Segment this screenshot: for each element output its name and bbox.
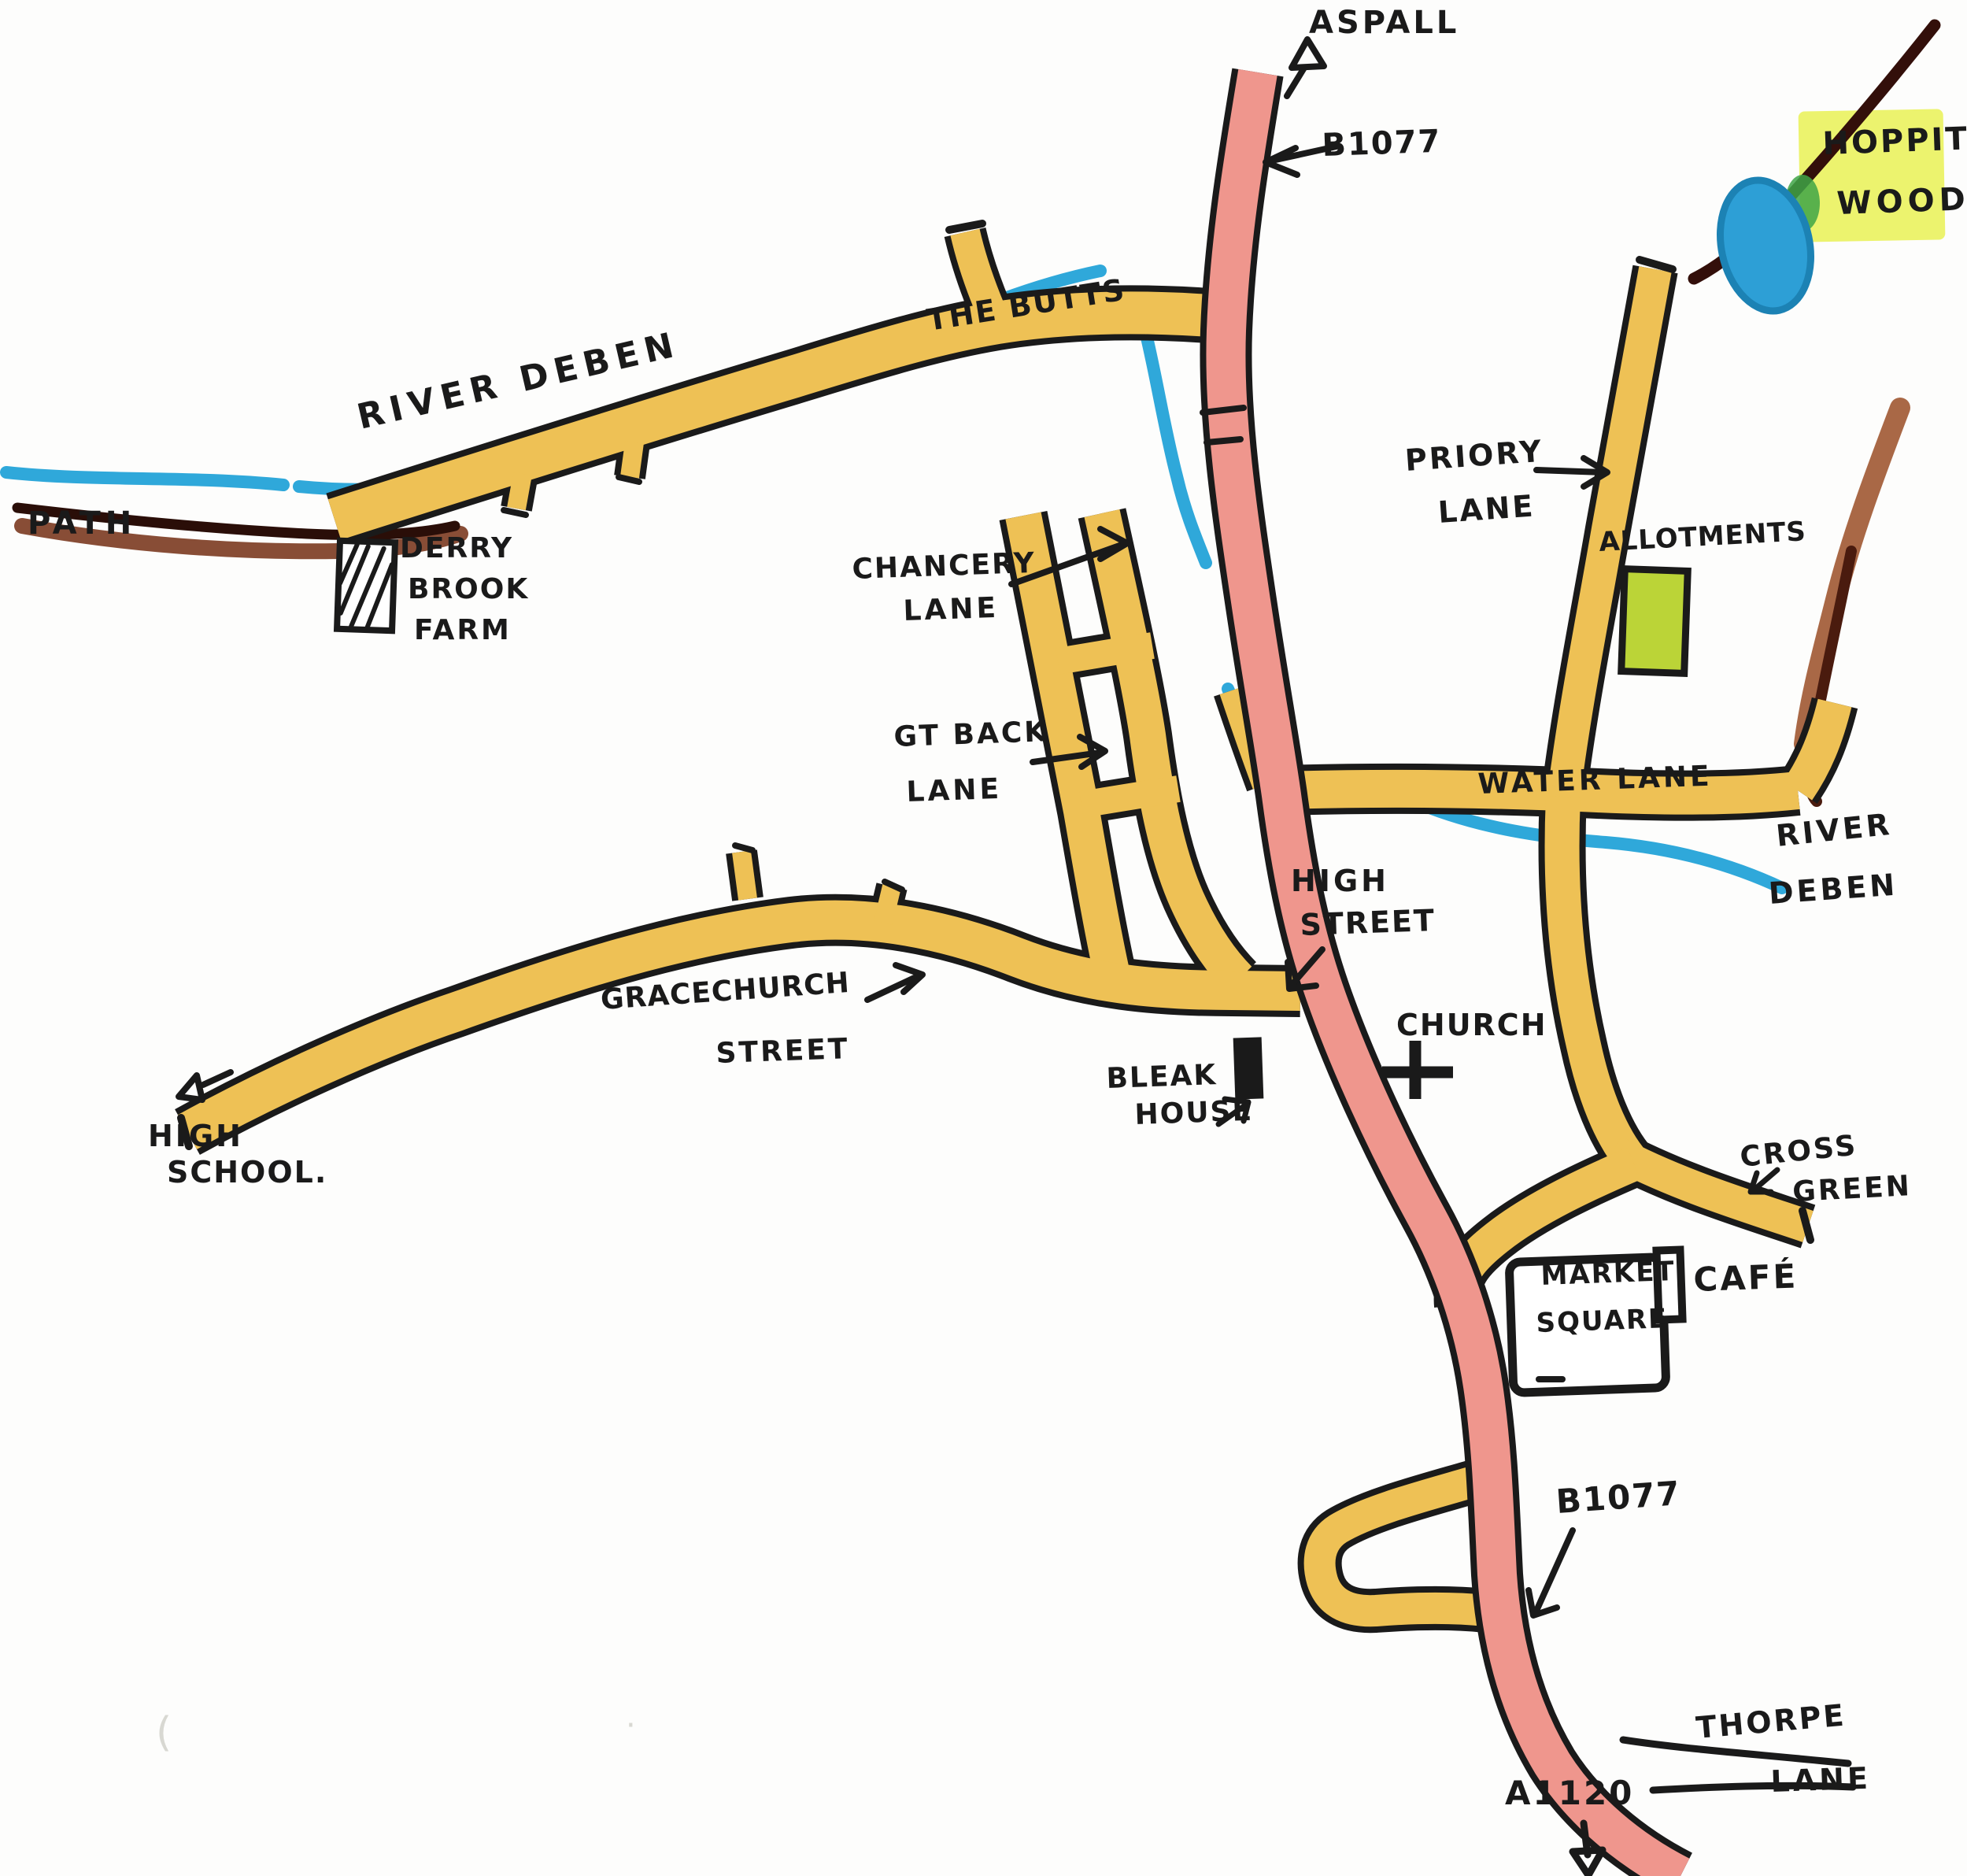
road-grace-stub-1 [741, 852, 748, 899]
tick-b1077-side-2 [1207, 439, 1240, 442]
label-brook: BROOK [408, 573, 529, 605]
road-butts-stub-1 [516, 474, 523, 509]
label-path: PATH [28, 505, 136, 542]
label-bleak: BLEAK [1106, 1059, 1218, 1095]
hand-drawn-town-map: ASPALLB1077HOPPITWOOD.THE BUTTSRIVER DEB… [0, 0, 1967, 1876]
road-ladder-rung-1 [1058, 646, 1152, 661]
label-gt-back: GT BACK [893, 716, 1049, 753]
allotments-rect [1621, 569, 1688, 674]
label-priory-lane: LANE [1437, 488, 1536, 530]
label-aspall: ASPALL [1309, 5, 1459, 41]
label-farm: FARM [414, 614, 512, 646]
label-a1120: A1120 [1505, 1774, 1634, 1812]
bleak-house-block [1233, 1037, 1264, 1099]
label-high-school-2: SCHOOL. [167, 1155, 327, 1190]
priory-lane-arrow-line [1536, 470, 1603, 472]
label-thorpe-lane: LANE [1770, 1761, 1872, 1799]
road-grace-stub-2 [883, 886, 892, 923]
label-church: CHURCH [1396, 1008, 1547, 1042]
label-cafe: CAFÉ [1693, 1256, 1799, 1299]
label-grace-street: STREET [715, 1033, 850, 1070]
label-high-school-1: HIGH [148, 1119, 243, 1153]
road-butts-stub-2 [630, 442, 634, 477]
road-ladder-rung-2 [1081, 789, 1178, 805]
label-chancery: CHANCERY [852, 547, 1037, 586]
scan-artifact-2: · [626, 1708, 636, 1744]
label-hoppit: HOPPIT [1822, 121, 1967, 162]
scanned-hand-drawn-map-page: ASPALLB1077HOPPITWOOD.THE BUTTSRIVER DEB… [0, 0, 1967, 1876]
label-chancery-lane: LANE [903, 592, 1000, 627]
scan-artifact-1: ( [156, 1709, 172, 1756]
label-b1077-top: B1077 [1322, 124, 1442, 164]
label-square: SQUARE [1536, 1303, 1669, 1339]
label-high: HIGH [1291, 864, 1389, 898]
label-street: STREET [1300, 903, 1436, 942]
label-wood: WOOD. [1836, 180, 1967, 222]
derry-brook-farm-symbol [337, 541, 395, 631]
label-house: HOUSE [1134, 1095, 1254, 1131]
label-derry: DERRY [400, 532, 513, 564]
label-green: GREEN [1791, 1170, 1913, 1208]
label-gt-back-lane: LANE [906, 773, 1003, 808]
label-market: MARKET [1540, 1256, 1676, 1292]
